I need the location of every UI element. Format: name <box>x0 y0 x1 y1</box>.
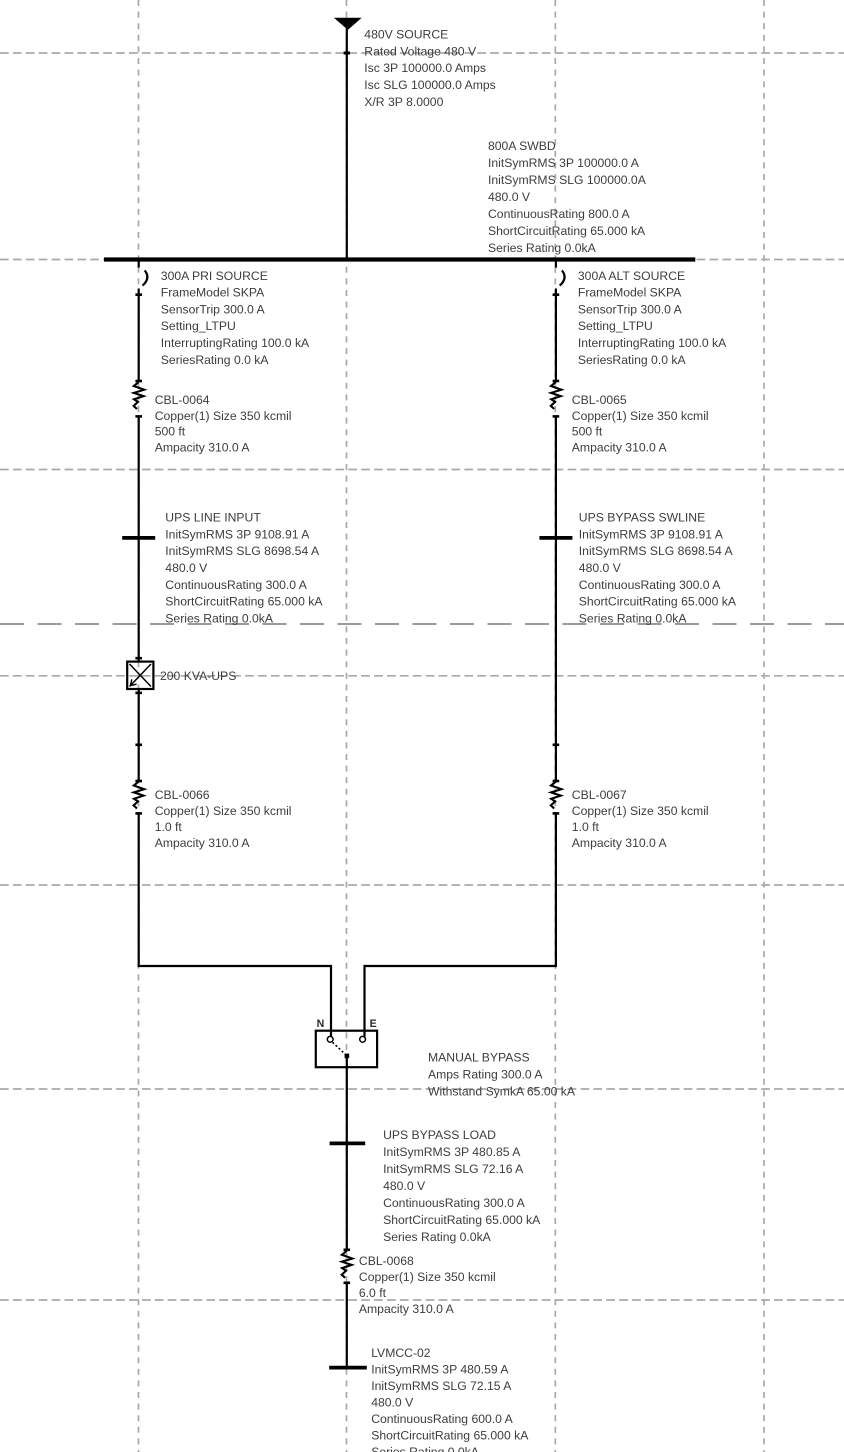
svg-text:Setting_LTPU: Setting_LTPU <box>161 319 236 333</box>
svg-text:300A PRI SOURCE: 300A PRI SOURCE <box>161 269 268 283</box>
svg-text:500 ft: 500 ft <box>155 425 186 439</box>
svg-text:UPS BYPASS SWLINE: UPS BYPASS SWLINE <box>579 511 705 525</box>
svg-text:Copper(1) Size 350 kcmil: Copper(1) Size 350 kcmil <box>572 409 709 423</box>
svg-text:CBL-0066: CBL-0066 <box>155 788 210 802</box>
svg-text:6.0 ft: 6.0 ft <box>359 1286 387 1300</box>
svg-text:E: E <box>370 1018 377 1030</box>
svg-text:InitSymRMS 3P 9108.91 A: InitSymRMS 3P 9108.91 A <box>165 527 310 541</box>
svg-text:Ampacity 310.0 A: Ampacity 310.0 A <box>572 440 668 454</box>
svg-text:Copper(1) Size 350 kcmil: Copper(1) Size 350 kcmil <box>155 409 292 423</box>
svg-text:Copper(1) Size 350 kcmil: Copper(1) Size 350 kcmil <box>155 804 292 818</box>
svg-text:InitSymRMS SLG 100000.0A: InitSymRMS SLG 100000.0A <box>488 173 647 187</box>
svg-text:CBL-0064: CBL-0064 <box>155 393 210 407</box>
svg-text:Copper(1) Size 350 kcmil: Copper(1) Size 350 kcmil <box>359 1270 496 1284</box>
svg-text:CBL-0068: CBL-0068 <box>359 1254 414 1268</box>
svg-text:UPS LINE INPUT: UPS LINE INPUT <box>165 511 261 525</box>
svg-text:FrameModel SKPA: FrameModel SKPA <box>578 286 682 300</box>
svg-text:200 KVA-UPS: 200 KVA-UPS <box>160 669 236 683</box>
svg-text:ShortCircuitRating 65.000 kA: ShortCircuitRating 65.000 kA <box>383 1213 541 1227</box>
svg-text:InitSymRMS SLG 72.16 A: InitSymRMS SLG 72.16 A <box>383 1162 524 1176</box>
svg-text:InitSymRMS SLG 8698.54 A: InitSymRMS SLG 8698.54 A <box>165 544 320 558</box>
svg-text:Setting_LTPU: Setting_LTPU <box>578 319 653 333</box>
svg-text:ShortCircuitRating 65.000 kA: ShortCircuitRating 65.000 kA <box>488 224 646 238</box>
svg-text:ContinuousRating 600.0 A: ContinuousRating 600.0 A <box>371 1412 513 1426</box>
svg-text:N: N <box>317 1018 325 1030</box>
svg-text:ShortCircuitRating 65.000 kA: ShortCircuitRating 65.000 kA <box>579 595 737 609</box>
svg-text:480V SOURCE: 480V SOURCE <box>364 28 448 42</box>
svg-text:Series Rating 0.0kA: Series Rating 0.0kA <box>579 611 688 625</box>
svg-text:SensorTrip 300.0 A: SensorTrip 300.0 A <box>161 302 266 316</box>
svg-text:SensorTrip 300.0 A: SensorTrip 300.0 A <box>578 302 683 316</box>
svg-text:ContinuousRating 300.0 A: ContinuousRating 300.0 A <box>383 1196 525 1210</box>
svg-text:480.0 V: 480.0 V <box>579 561 622 575</box>
svg-text:Isc SLG 100000.0 Amps: Isc SLG 100000.0 Amps <box>364 78 495 92</box>
svg-text:Ampacity 310.0 A: Ampacity 310.0 A <box>155 836 251 850</box>
svg-text:1.0 ft: 1.0 ft <box>572 820 600 834</box>
svg-text:InterruptingRating 100.0 kA: InterruptingRating 100.0 kA <box>578 336 727 350</box>
svg-text:MANUAL BYPASS: MANUAL BYPASS <box>428 1051 530 1065</box>
svg-text:LVMCC-02: LVMCC-02 <box>371 1346 431 1360</box>
svg-text:480.0 V: 480.0 V <box>165 561 208 575</box>
svg-text:SeriesRating 0.0 kA: SeriesRating 0.0 kA <box>578 353 687 367</box>
svg-text:UPS BYPASS LOAD: UPS BYPASS LOAD <box>383 1128 496 1142</box>
svg-text:Isc 3P 100000.0 Amps: Isc 3P 100000.0 Amps <box>364 61 486 75</box>
svg-text:Ampacity 310.0 A: Ampacity 310.0 A <box>572 836 668 850</box>
svg-text:ShortCircuitRating 65.000 kA: ShortCircuitRating 65.000 kA <box>165 595 323 609</box>
svg-text:InitSymRMS 3P 100000.0 A: InitSymRMS 3P 100000.0 A <box>488 156 640 170</box>
svg-text:InitSymRMS 3P 480.85 A: InitSymRMS 3P 480.85 A <box>383 1145 521 1159</box>
svg-text:800A SWBD: 800A SWBD <box>488 139 556 153</box>
svg-text:InitSymRMS 3P 480.59 A: InitSymRMS 3P 480.59 A <box>371 1363 509 1377</box>
svg-text:Ampacity 310.0 A: Ampacity 310.0 A <box>359 1302 455 1316</box>
svg-text:Series Rating 0.0kA: Series Rating 0.0kA <box>383 1230 492 1244</box>
svg-text:Amps Rating 300.0 A: Amps Rating 300.0 A <box>428 1067 543 1081</box>
svg-text:InitSymRMS SLG 8698.54 A: InitSymRMS SLG 8698.54 A <box>579 544 734 558</box>
svg-text:CBL-0065: CBL-0065 <box>572 393 627 407</box>
svg-text:CBL-0067: CBL-0067 <box>572 788 627 802</box>
svg-text:Withstand SymkA 65.00 kA: Withstand SymkA 65.00 kA <box>428 1084 576 1098</box>
svg-text:Rated Voltage 480 V: Rated Voltage 480 V <box>364 44 477 58</box>
svg-text:480.0 V: 480.0 V <box>383 1179 426 1193</box>
svg-text:300A ALT SOURCE: 300A ALT SOURCE <box>578 269 685 283</box>
svg-text:InitSymRMS SLG 72.15 A: InitSymRMS SLG 72.15 A <box>371 1379 512 1393</box>
svg-text:480.0 V: 480.0 V <box>488 190 531 204</box>
svg-text:Series Rating 0.0kA: Series Rating 0.0kA <box>165 611 274 625</box>
svg-text:1.0 ft: 1.0 ft <box>155 820 183 834</box>
svg-text:InitSymRMS 3P 9108.91 A: InitSymRMS 3P 9108.91 A <box>579 527 724 541</box>
svg-text:Ampacity 310.0 A: Ampacity 310.0 A <box>155 440 251 454</box>
svg-text:InterruptingRating 100.0 kA: InterruptingRating 100.0 kA <box>161 336 310 350</box>
svg-text:Copper(1) Size 350 kcmil: Copper(1) Size 350 kcmil <box>572 804 709 818</box>
svg-text:FrameModel SKPA: FrameModel SKPA <box>161 286 265 300</box>
svg-text:ContinuousRating 300.0 A: ContinuousRating 300.0 A <box>579 578 721 592</box>
svg-text:ShortCircuitRating 65.000 kA: ShortCircuitRating 65.000 kA <box>371 1429 529 1443</box>
svg-text:Series Rating 0.0kA: Series Rating 0.0kA <box>488 241 597 255</box>
svg-text:ContinuousRating 300.0 A: ContinuousRating 300.0 A <box>165 578 307 592</box>
svg-text:500 ft: 500 ft <box>572 425 603 439</box>
svg-text:X/R 3P 8.0000: X/R 3P 8.0000 <box>364 95 443 109</box>
svg-text:SeriesRating 0.0 kA: SeriesRating 0.0 kA <box>161 353 270 367</box>
svg-text:Series Rating 0.0kA: Series Rating 0.0kA <box>371 1445 480 1452</box>
svg-text:ContinuousRating 800.0 A: ContinuousRating 800.0 A <box>488 207 630 221</box>
svg-text:480.0 V: 480.0 V <box>371 1396 414 1410</box>
